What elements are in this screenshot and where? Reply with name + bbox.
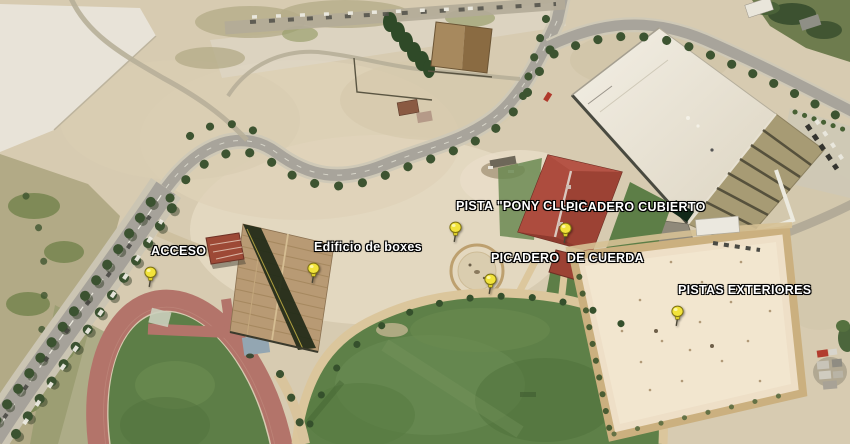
marker-label: PICADERO CUBIERTO [566,200,706,214]
marker-layer: ACCESOEdificio de boxesPISTA "PONY CLUB"… [0,0,850,444]
marker-label: ACCESO [151,244,206,258]
pushpin-icon[interactable] [482,273,499,295]
marker-label: PICADERO DE CUERDA [491,251,644,265]
marker-label: Edificio de boxes [314,240,422,254]
marker-label: PISTAS EXTERIORES [678,283,811,297]
pushpin-icon[interactable] [305,262,322,284]
pushpin-icon[interactable] [669,305,686,327]
pushpin-icon[interactable] [142,266,159,288]
pushpin-icon[interactable] [557,222,574,244]
map-viewport[interactable]: ACCESOEdificio de boxesPISTA "PONY CLUB"… [0,0,850,444]
pushpin-icon[interactable] [447,221,464,243]
